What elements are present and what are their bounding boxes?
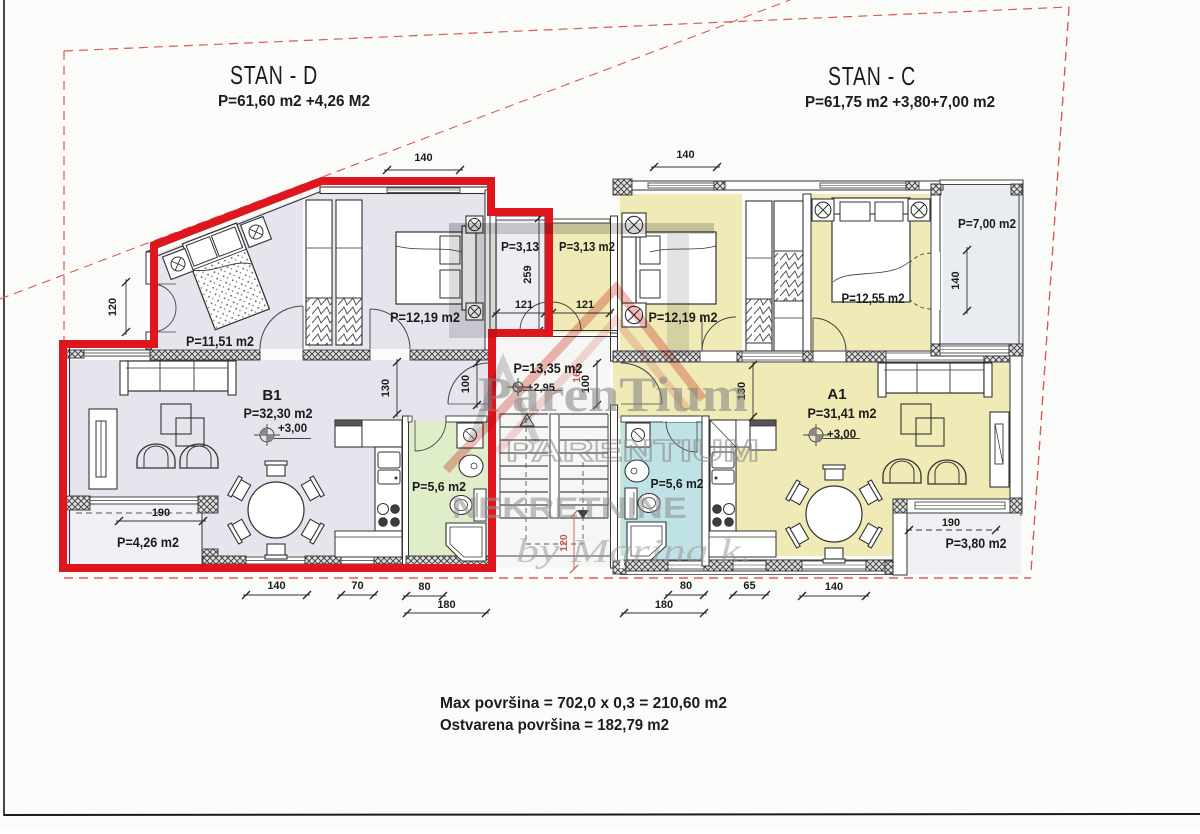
svg-text:NEKRETNINE: NEKRETNINE: [452, 492, 687, 525]
svg-text:P=11,51 m2: P=11,51 m2: [186, 334, 254, 349]
svg-text:130: 130: [380, 379, 392, 397]
svg-text:80: 80: [418, 581, 430, 593]
svg-text:STAN - C: STAN - C: [828, 61, 916, 91]
svg-text:P=5,6 m2: P=5,6 m2: [651, 476, 704, 491]
svg-text:by Marina k.: by Marina k.: [516, 533, 752, 570]
svg-text:P=32,30 m2: P=32,30 m2: [244, 406, 313, 421]
svg-text:STAN - D: STAN - D: [230, 60, 318, 90]
svg-text:121: 121: [515, 299, 533, 311]
svg-text:80: 80: [680, 580, 692, 592]
svg-text:+3,00: +3,00: [827, 429, 856, 441]
svg-text:70: 70: [351, 580, 363, 592]
svg-text:190: 190: [942, 517, 960, 529]
svg-text:140: 140: [950, 271, 962, 289]
svg-text:Max površina = 702,0 x 0,3 = 2: Max površina = 702,0 x 0,3 = 210,60 m2: [440, 695, 727, 712]
svg-text:65: 65: [743, 580, 755, 592]
svg-text:P=4,26 m2: P=4,26 m2: [117, 535, 179, 550]
svg-text:P=61,75 m2 +3,80+7,00 m2: P=61,75 m2 +3,80+7,00 m2: [805, 94, 995, 111]
svg-text:140: 140: [267, 580, 285, 592]
svg-text:259: 259: [522, 265, 534, 283]
svg-text:140: 140: [414, 152, 432, 164]
svg-text:100: 100: [460, 375, 472, 393]
svg-text:B1: B1: [262, 387, 281, 404]
svg-text:ParenTium: ParenTium: [478, 366, 748, 422]
svg-text:+3,00: +3,00: [278, 423, 307, 435]
svg-text:180: 180: [655, 599, 673, 611]
svg-text:A1: A1: [827, 386, 846, 403]
svg-text:140: 140: [825, 581, 843, 593]
svg-text:P=3,80 m2: P=3,80 m2: [946, 536, 1007, 551]
svg-text:P=3,13 m2: P=3,13 m2: [559, 239, 615, 254]
svg-text:140: 140: [676, 149, 694, 161]
svg-text:P=61,60 m2 +4,26 M2: P=61,60 m2 +4,26 M2: [218, 93, 370, 110]
svg-text:P=3,13: P=3,13: [501, 239, 539, 254]
svg-text:Ostvarena površina = 182,79 m: Ostvarena površina = 182,79 m2: [440, 717, 669, 734]
svg-text:190: 190: [152, 507, 170, 519]
svg-text:180: 180: [437, 599, 455, 611]
svg-text:P=7,00 m2: P=7,00 m2: [958, 216, 1016, 231]
svg-text:P=31,41 m2: P=31,41 m2: [808, 406, 877, 421]
svg-text:PARENTIUM: PARENTIUM: [506, 433, 759, 468]
svg-text:P=12,55 m2: P=12,55 m2: [842, 291, 905, 306]
svg-text:120: 120: [107, 298, 119, 316]
